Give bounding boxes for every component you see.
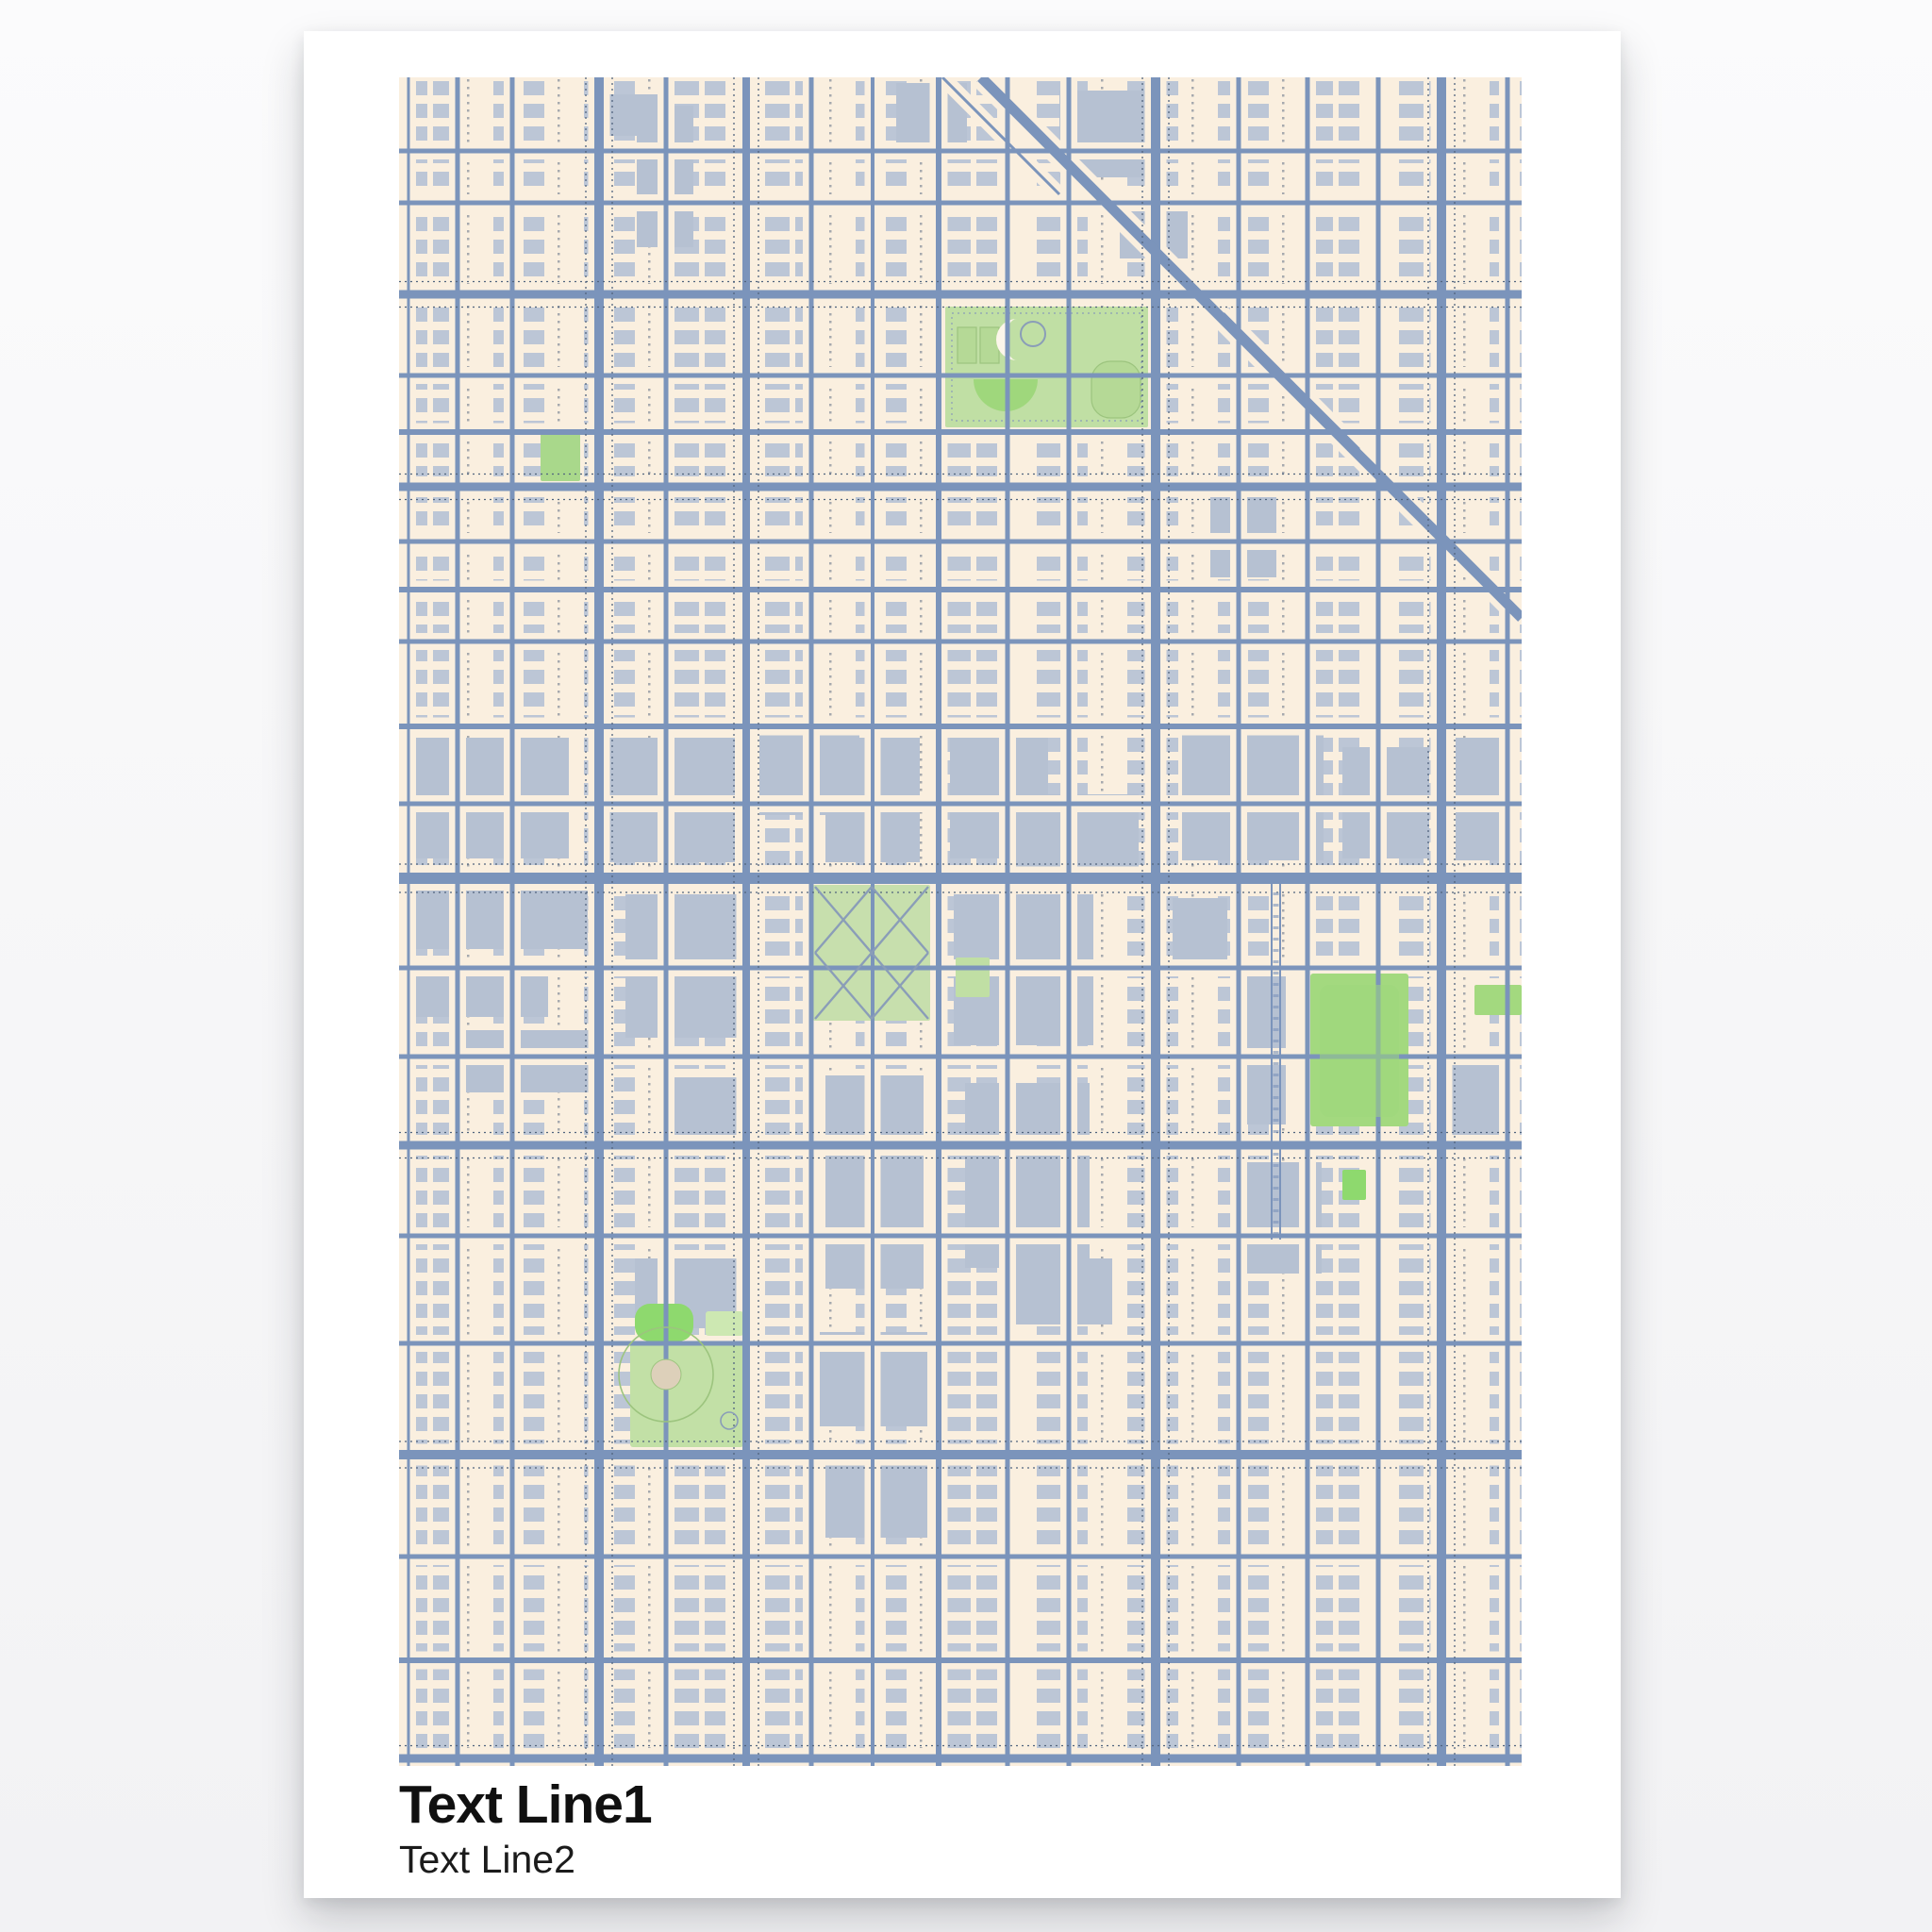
park-baseball bbox=[630, 1341, 743, 1447]
park-sliver bbox=[956, 958, 990, 997]
poster: Text Line1 Text Line2 bbox=[304, 31, 1621, 1898]
baseball-infield bbox=[651, 1359, 681, 1390]
caption: Text Line1 Text Line2 bbox=[399, 1777, 652, 1880]
park-strip-right bbox=[1474, 985, 1522, 1015]
stadium-field bbox=[1320, 985, 1399, 1117]
park-courts bbox=[980, 327, 999, 363]
caption-line2: Text Line2 bbox=[399, 1840, 652, 1880]
city-map bbox=[399, 77, 1522, 1766]
map-area bbox=[399, 77, 1522, 1766]
page-background: Text Line1 Text Line2 bbox=[0, 0, 1932, 1932]
park-dot-center bbox=[1342, 1170, 1366, 1200]
park-field-small bbox=[706, 1311, 743, 1336]
park-ballfield bbox=[1091, 361, 1141, 418]
caption-line1: Text Line1 bbox=[399, 1777, 652, 1834]
park-courts bbox=[958, 327, 976, 363]
